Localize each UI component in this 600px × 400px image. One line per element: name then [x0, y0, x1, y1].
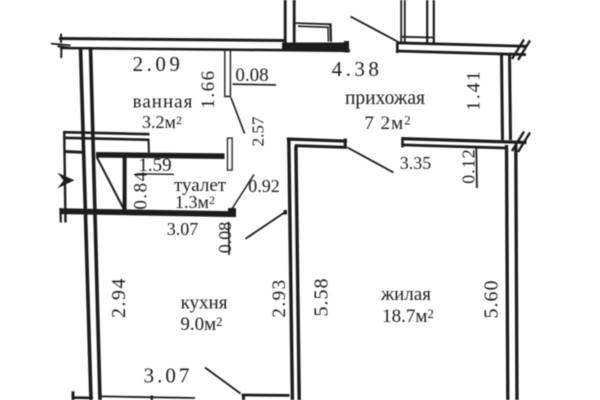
svg-text:3.07: 3.07	[167, 219, 199, 239]
svg-text:1.66: 1.66	[198, 69, 219, 108]
svg-text:2.09: 2.09	[133, 52, 184, 76]
svg-text:1.41: 1.41	[464, 69, 485, 110]
svg-text:5.60: 5.60	[481, 280, 503, 319]
svg-text:0.12: 0.12	[459, 148, 479, 184]
svg-text:3.07: 3.07	[144, 364, 193, 388]
svg-text:18.7м2: 18.7м2	[382, 306, 434, 327]
svg-text:ванная: ванная	[133, 92, 194, 113]
svg-text:2.93: 2.93	[269, 278, 290, 317]
svg-text:0.08: 0.08	[235, 65, 268, 86]
svg-text:прихожая: прихожая	[345, 88, 425, 109]
svg-text:3.35: 3.35	[400, 153, 432, 173]
svg-text:кухня: кухня	[181, 293, 228, 314]
svg-text:жилая: жилая	[380, 284, 431, 305]
svg-text:0.84: 0.84	[131, 170, 152, 209]
svg-text:0.08: 0.08	[215, 222, 235, 254]
svg-text:5.58: 5.58	[311, 278, 333, 317]
svg-text:2.94: 2.94	[108, 277, 130, 318]
svg-text:4.38: 4.38	[332, 57, 383, 81]
svg-text:2.57: 2.57	[249, 116, 268, 146]
svg-text:0.92: 0.92	[248, 176, 280, 196]
